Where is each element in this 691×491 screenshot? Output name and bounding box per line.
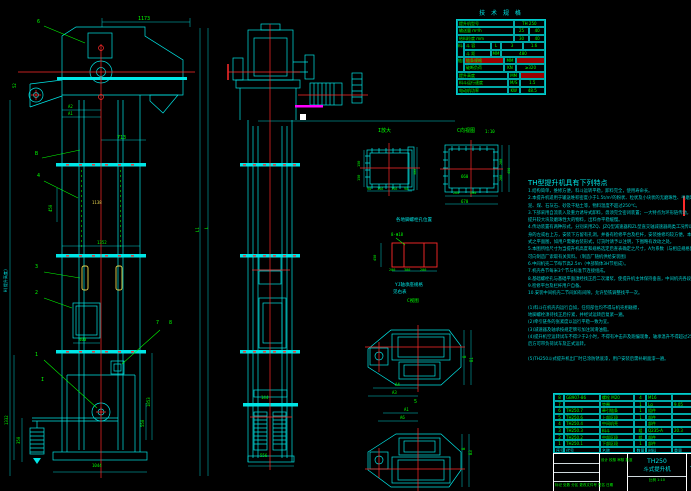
note-line: [528, 297, 691, 304]
bom-cell-no: 5: [554, 414, 564, 421]
bom-cell-code: TH250.3: [564, 427, 600, 434]
dim-label: 300: [404, 269, 410, 273]
dim-label: 400: [79, 338, 86, 342]
parts-list-row: 8 GB907-86 螺栓 M20 4 M16: [554, 394, 691, 401]
bom-cell-no: 3: [554, 427, 564, 434]
part-label: 3: [35, 265, 38, 270]
dim-label: 1853: [147, 397, 151, 407]
dim-label: 200: [470, 192, 476, 196]
notes-heading: TH型提升机具有下列特点: [528, 178, 691, 188]
dim-label: B3: [469, 450, 473, 455]
anchor-bolt-detail: [392, 243, 437, 267]
spec-cell: MM: [491, 50, 501, 57]
spec-cell: 40: [529, 35, 545, 42]
dim-label: 90: [367, 188, 371, 192]
spec-cell: MM: [508, 72, 520, 79]
bom-cell-code: TH250.1: [564, 440, 600, 447]
dim-label: 1044: [92, 464, 102, 468]
bom-cell-qty: 1: [634, 401, 646, 408]
spec-cell: L: [491, 42, 501, 49]
bom-cell-no: 4: [554, 420, 564, 427]
front-elevation-view: [29, 27, 187, 464]
spec-cell: 提升机型号: [457, 20, 514, 27]
dim-label: A4: [395, 383, 400, 387]
bom-cell-weight: 9.05: [672, 401, 691, 408]
dim-label: 556: [260, 454, 267, 458]
spec-cell: 破断负荷: [464, 64, 504, 71]
hole-callout: 8-Φ18: [391, 233, 403, 237]
bom-cell-material: 部件: [646, 414, 672, 421]
note-line: [528, 349, 691, 356]
dim-label: 90: [404, 188, 408, 192]
note-line: 可向制造厂索取有关资料。（制造厂随机供给安装图）: [528, 254, 691, 261]
bom-cell-no: 6: [554, 407, 564, 414]
spec-cell: KW: [508, 87, 520, 94]
bom-cell-material: 部件: [646, 434, 672, 441]
spec-cell: 1.6: [523, 42, 545, 49]
dim-label: 450: [508, 168, 512, 174]
product-model: TH250: [628, 457, 686, 466]
dim-label: A3: [392, 391, 397, 395]
spec-cell: 3: [501, 42, 523, 49]
bom-cell-qty: 1: [634, 440, 646, 447]
parts-list-row: 3 TH250.3 料斗 组 Q235-A 20.3: [554, 427, 691, 434]
part-label: 6: [37, 20, 40, 25]
note-line: 10.安装中间机壳二节间如有间隙，允许垫铁调整找平一次。: [528, 290, 691, 297]
note-line: 3.下部采用自流装入及重力诱导式卸料，毋须完全密闭装置；一大特点为环形链传动，运…: [528, 210, 691, 217]
spec-cell: ≥320: [516, 64, 545, 71]
view-title: C向视图: [457, 129, 475, 134]
part-label: 4: [37, 174, 40, 179]
bom-cell-weight: [672, 434, 691, 441]
dim-label: 550: [141, 420, 145, 427]
note-line: 式之平面图，如用户需要右装形式，订货时请予以注明，下图略有改动之处。: [528, 239, 691, 246]
dim-label: A2: [68, 105, 73, 109]
spec-cell: MM: [504, 57, 516, 64]
spec-cell-highlighted: [516, 57, 545, 64]
parts-list-row: 2 TH250.2 中部区段 组 部件: [554, 434, 691, 441]
spec-cell: M/S: [508, 79, 520, 86]
parts-list-row: 7 垫圈 1 Lg 9.05: [554, 401, 691, 408]
bucket-outlines-yellow: [82, 266, 122, 290]
title-block-product-zone: TH250 斗式提升机 比例 1:10: [628, 454, 687, 491]
note-line: (4)提升机空运转试车不得少于2小时，不得有冲击声及跑偏现象，轴承温升不得超过2…: [528, 334, 691, 341]
bom-cell-qty: 4: [634, 394, 646, 401]
note-line: (3)减速器及轴承按规定牌号加注润滑油脂。: [528, 327, 691, 334]
dim-label: 200: [500, 159, 504, 165]
part-label: 2: [35, 291, 38, 296]
note-line: 后方可带负荷试车及正式运转。: [528, 341, 691, 348]
section-marker: I: [41, 378, 44, 383]
dim-label: 144: [261, 396, 268, 400]
note-line: 7.机壳各节每米3个节与标准节连接组成。: [528, 268, 691, 275]
dim-label: A1: [68, 112, 73, 116]
spec-cell: 料斗运行速度: [457, 79, 508, 86]
detail-caption: 各地脚螺栓孔位置: [396, 219, 432, 224]
dim-label: 713: [117, 136, 126, 141]
dim-label: 1332: [5, 415, 9, 425]
note-line: 9.检修平台及栏杆用户自备。: [528, 283, 691, 290]
parts-list-table: 8 GB907-86 螺栓 M20 4 M16 7 垫圈 1 Lg 9.05 6…: [553, 393, 691, 454]
bom-cell-material: 部件: [646, 440, 672, 447]
dim-label: 260: [453, 192, 459, 196]
spec-cell: 提升高度: [457, 72, 508, 79]
bom-cell-material: 部件: [646, 420, 672, 427]
dim-label: L: [205, 227, 209, 229]
parts-list-row: 6 TH250.7 牵引链条 1 组件: [554, 407, 691, 414]
spec-cell: 40: [529, 27, 545, 34]
bom-cell-weight: [672, 407, 691, 414]
view-title: I放大: [378, 129, 391, 134]
spec-cell: TH 250: [514, 20, 545, 27]
bom-cell-weight: 20.3: [672, 427, 691, 434]
dim-label: 660: [461, 175, 468, 179]
dim-label: A1: [404, 408, 409, 412]
bom-cell-name: 牵引链条: [600, 407, 634, 414]
bom-cell-weight: [672, 440, 691, 447]
bom-cell-material: Lg: [646, 401, 672, 408]
side-elevation-view: [233, 24, 362, 462]
bom-cell-qty: [634, 420, 646, 427]
note-line: 4.传动装置有两种形式，分别采用ZQ、JZQ型减速器和ZL型直交轴减速器两类工况…: [528, 224, 691, 231]
bom-cell-code: TH250.7: [564, 407, 600, 414]
bom-cell-name: 上部区段: [600, 414, 634, 421]
note-line: 地脚螺栓须待找正后拧紧，并经试运转后复紧一遍。: [528, 312, 691, 319]
view-title: C视图: [407, 300, 419, 305]
dim-label: H(提升高度): [4, 269, 8, 292]
bom-cell-weight: [672, 420, 691, 427]
head-plan-view-lower: [368, 434, 461, 487]
bom-cell-code: TH250.2: [564, 434, 600, 441]
parts-list-row: 5 TH250.6 上部区段 1 部件: [554, 414, 691, 421]
note-line: 泥、煤、石灰石、砂及干粘土等，物料温度不超过250℃。: [528, 203, 691, 210]
dim-label: 150: [358, 175, 362, 181]
dim-label: 450: [374, 255, 378, 261]
detail-caption: YJ轴承座规格: [395, 284, 423, 289]
view-scale: 1:10: [485, 130, 495, 134]
head-plan-view-upper: [368, 330, 461, 385]
spec-cell: 25: [514, 27, 530, 34]
bom-cell-qty: 组: [634, 434, 646, 441]
dim-label: 1173: [138, 17, 150, 22]
dim-label: L1: [196, 227, 200, 232]
bom-cell-material: 组件: [646, 407, 672, 414]
note-line: 提升较大块及磨琢性大的物料，出料亦平稳缓慢。: [528, 217, 691, 224]
note-line: (1)料斗在机壳内运行自如，任何部位均不得与机壳相碰擦，: [528, 305, 691, 312]
note-line: 2.本提升机适用于输送堆积密度小于1.5t/m³的粉状、粒状及小块状的无磨琢性、…: [528, 195, 691, 202]
spec-cell: 1.5: [520, 79, 545, 86]
bom-cell-code: [564, 401, 600, 408]
bom-cell-material: M16: [646, 394, 672, 401]
bom-cell-name: 料斗: [600, 427, 634, 434]
spec-cell: 给料粒度 mm: [457, 35, 514, 42]
bom-cell-no: 8: [554, 394, 564, 401]
part-label: 7: [156, 321, 159, 326]
part-label: 8: [169, 321, 172, 326]
bom-cell-code: TH250.6: [564, 414, 600, 421]
detail-caption: 见右表: [393, 291, 407, 296]
technical-spec-table: 技 术 规 格 提升机型号 TH 250 输送量 m³/h 25 40 给料粒度…: [456, 8, 546, 95]
dim-label: 156: [377, 188, 383, 192]
note-line: 6.中间机壳二节每节高2.5m（中部筒体3H节组成）。: [528, 261, 691, 268]
bom-cell-name: 螺栓 M20: [600, 394, 634, 401]
notes-block: TH型提升机具有下列特点 1.结构简单，维修方便，料斗运转平稳，卸料完全，使用寿…: [528, 178, 691, 392]
dim-label: B: [462, 448, 466, 450]
note-line: 身的左或右上方，安装下方留有孔洞，并备有检修平台及栏杆，安装维修均较方便。本图仅…: [528, 232, 691, 239]
cad-canvas: { "colors": { "background": "#000000", "…: [0, 0, 691, 491]
dim-label: 300: [414, 169, 418, 175]
title-block-revision-zone: 标记 处数 分区 更改文件号 签名 日期: [554, 454, 600, 491]
dim-label: 150: [358, 161, 362, 167]
bom-cell-no: 2: [554, 434, 564, 441]
dim-label: 200: [500, 175, 504, 181]
bom-cell-qty: 1: [634, 407, 646, 414]
bom-cell-name: 中间机壳: [600, 420, 634, 427]
parts-list-row: 4 TH250.4 中间机壳 部件: [554, 420, 691, 427]
part-label: 1: [35, 353, 38, 358]
bom-cell-no: 1: [554, 440, 564, 447]
spec-cell: KN: [504, 64, 516, 71]
selection-grip[interactable]: [300, 114, 306, 120]
dim-label: 450: [49, 205, 53, 212]
spec-cell: 480: [501, 50, 545, 57]
part-label: 5: [414, 400, 417, 405]
dim-label: 1352: [97, 241, 107, 245]
spec-group-cell: 料斗: [457, 42, 464, 57]
spec-cell: 48.5: [520, 87, 545, 94]
dim-label: 156: [391, 188, 397, 192]
title-block: 标记 处数 分区 更改文件号 签名 日期 设计 校核 审核 批准 TH250 斗…: [553, 453, 691, 491]
note-line: (5)TH250斗式提升机出厂时已涂防锈底漆，用户安装后需补刷面漆一遍。: [528, 356, 691, 363]
dim-label: B: [463, 356, 467, 358]
bom-cell-code: TH250.4: [564, 420, 600, 427]
bom-cell-material: Q235-A: [646, 427, 672, 434]
spec-cell: 斗 容: [464, 42, 491, 49]
spec-cell: 30: [514, 35, 530, 42]
bom-cell-no: 7: [554, 401, 564, 408]
dim-label: 350: [17, 437, 21, 444]
dim-label: 670: [461, 200, 468, 204]
note-line: 8.基础螺栓孔与基础平面须经找正后二次灌浆，使提升机主体保持垂直，中间机壳各段采…: [528, 276, 691, 283]
part-label: B: [35, 152, 38, 157]
bom-cell-weight: [672, 414, 691, 421]
spec-cell: 电动机功率: [457, 87, 508, 94]
bom-cell-name: 下部区段: [600, 440, 634, 447]
parts-list-row: 1 TH250.1 下部区段 1 部件: [554, 440, 691, 447]
spec-cell: 斗 距: [464, 50, 491, 57]
spec-cell: 链条规格: [464, 57, 504, 64]
section-detail-i: [365, 147, 414, 190]
bom-cell-code: GB907-86: [564, 394, 600, 401]
title-block-drawing-no-zone: TH250: [687, 454, 691, 491]
scale-row: 比例 1:10: [628, 476, 686, 483]
spec-table-title: 技 术 规 格: [456, 8, 546, 17]
bom-cell-qty: 1: [634, 414, 646, 421]
notes-lines: 1.结构简单，维修方便，料斗运转平稳，卸料完全，使用寿命长。2.本提升机适用于输…: [528, 188, 691, 363]
bom-cell-name: 垫圈: [600, 401, 634, 408]
bom-cell-name: 中部区段: [600, 434, 634, 441]
title-block-sign-zone: 设计 校核 审核 批准: [600, 454, 628, 491]
bom-cell-weight: [672, 394, 691, 401]
spec-cell: 输送量 m³/h: [457, 27, 514, 34]
dim-label: A6: [400, 416, 405, 420]
dim-label: 52: [13, 83, 17, 88]
magenta-highlight-line: [295, 105, 323, 108]
note-line: 1.结构简单，维修方便，料斗运转平稳，卸料完全，使用寿命长。: [528, 188, 691, 195]
dim-label: 200: [389, 269, 395, 273]
dim-label: B1: [470, 357, 474, 362]
note-line: (2)牵引链条的张紧度以运行平稳一致为宜。: [528, 319, 691, 326]
spec-group-cell: 链条: [457, 57, 464, 72]
dim-label: 1138: [92, 201, 102, 205]
product-name: 斗式提升机: [628, 466, 686, 474]
dim-label: 200: [420, 269, 426, 273]
note-line: 5.本图所绘尺寸为当提升机高度和规格选定后查表确定之尺寸，A为系数（与相应规格配…: [528, 246, 691, 253]
spec-cell-highlighted: [520, 72, 545, 79]
bom-cell-qty: 组: [634, 427, 646, 434]
